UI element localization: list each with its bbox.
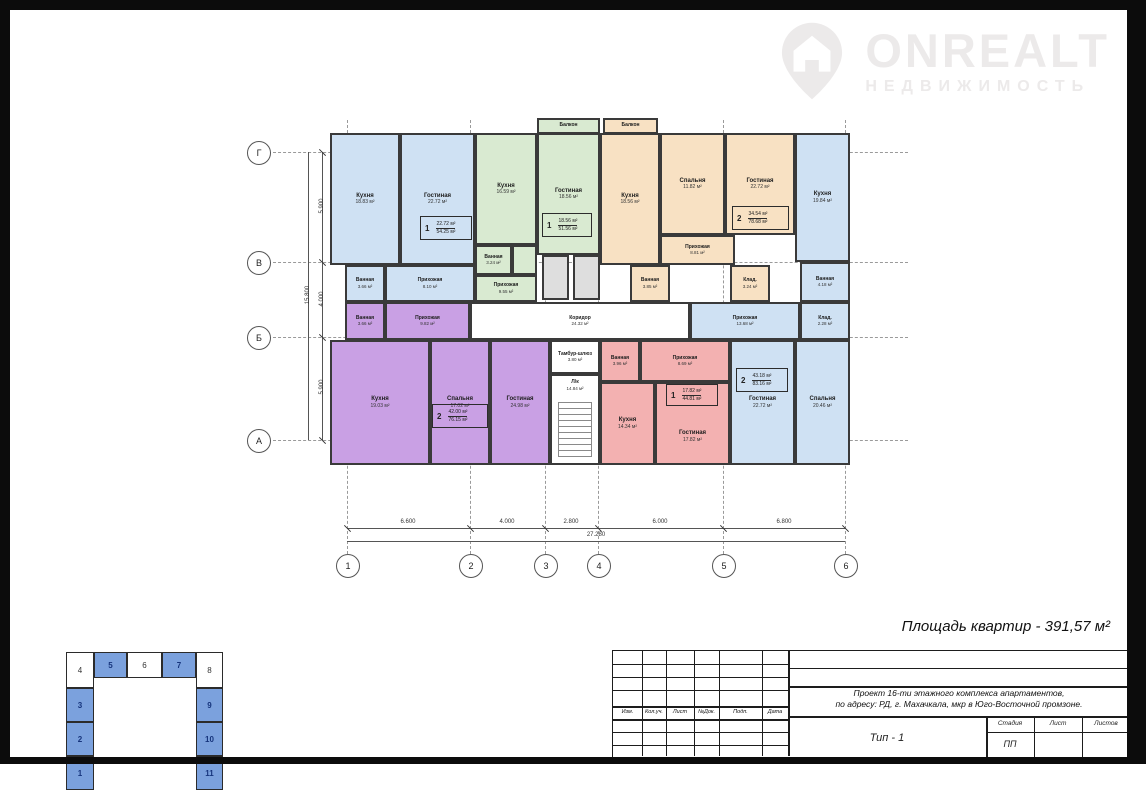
room-area: 3.80 м² (568, 357, 583, 362)
dim-value: 6.000 (640, 519, 680, 525)
frame-border-left (0, 0, 10, 764)
room-bedroom: Спальня 11.82 м² (660, 133, 725, 235)
room-label: Гостиная (555, 188, 582, 195)
total-area: 76.15 м² (448, 417, 467, 424)
apartment-badge: 1 17.82 м² 44.81 м² (666, 384, 718, 406)
room-area: 2.28 м² (818, 321, 833, 326)
room-bath: Ванная 3.96 м² (600, 340, 640, 382)
titleblock-line (613, 719, 788, 721)
room-label: Кухня (619, 417, 637, 424)
titleblock-line (642, 651, 643, 756)
total-area: 78.68 м² (748, 219, 767, 226)
site-block: 4 (66, 652, 94, 688)
apartment-number: 2 (733, 207, 745, 229)
room-hall: Прихожая 9.55 м² (475, 275, 537, 302)
sheets-header: Листов (1082, 720, 1130, 727)
living-area: 22.72 м² (436, 221, 455, 229)
room-label: Кухня (371, 396, 389, 403)
apartment-badge: 2 42.00 м² 76.15 м² (432, 404, 488, 428)
room-area: 17.82 м² (683, 437, 702, 443)
total-area: 51.56 м² (558, 226, 577, 233)
room-area: 3.24 м² (743, 284, 758, 289)
frame-border-right (1127, 0, 1146, 764)
room-living: Гостиная 24.98 м² (490, 340, 550, 465)
room-area: 19.84 м² (813, 198, 832, 204)
room-bedroom: Спальня 20.46 м² (795, 340, 850, 465)
frame-border-bottom (0, 757, 1146, 764)
apartment-number: 1 (421, 217, 433, 239)
room-balcony: Балкон (603, 118, 658, 134)
room-bath: Ванная 3.85 м² (630, 265, 670, 302)
elevator-shaft (542, 255, 569, 300)
room-area: 8.81 м² (690, 250, 705, 255)
titleblock-line (613, 706, 788, 708)
titleblock-line (719, 651, 720, 756)
revision-header: Кол.уч. (642, 709, 666, 715)
living-area: 34.54 м² (748, 211, 767, 219)
titleblock-line (613, 690, 788, 691)
room-kitchen: Кухня 18.56 м² (600, 133, 660, 265)
stairs (558, 402, 592, 457)
total-area: 44.81 м² (682, 396, 701, 403)
room-label: Балкон (559, 123, 577, 129)
total-area: 54.25 м² (436, 229, 455, 236)
room-living: Гостиная 22.72 м² (400, 133, 475, 265)
room-area: 24.98 м² (510, 403, 529, 409)
room-area: 22.72 м² (753, 403, 772, 409)
pin-house-icon (771, 20, 853, 102)
onrealt-watermark: ONREALT НЕДВИЖИМОСТЬ (771, 20, 1110, 102)
corridor: Коридор 24.32 м² (470, 302, 690, 340)
room-hall: Прихожая 9.82 м² (385, 302, 470, 340)
room-area: 11.82 м² (683, 184, 702, 190)
room-area: 24.32 м² (571, 321, 588, 326)
revision-header: Подп. (719, 709, 762, 715)
room-area: 3.24 м² (486, 260, 501, 265)
site-block-highlighted: 10 (196, 722, 223, 756)
site-block-highlighted: 5 (94, 652, 127, 678)
revision-header: Дата (762, 709, 788, 715)
room-area: 16.59 м² (496, 189, 515, 195)
room-label: Спальня (810, 396, 836, 403)
vestibule: Тамбур-шлюз 3.80 м² (550, 340, 600, 374)
dim-total: 15.800 (305, 275, 311, 315)
elevator-shaft (573, 255, 600, 300)
room-bath: Ванная 4.18 м² (800, 262, 850, 302)
room-area: 3.96 м² (613, 361, 628, 366)
room-hall: Прихожая 8.69 м² (640, 340, 730, 382)
titleblock-line (762, 651, 763, 756)
room-storage: Клад. 3.24 м² (730, 265, 770, 302)
room-area: 3.85 м² (643, 284, 658, 289)
room-label: Балкон (621, 123, 639, 129)
total-apartments-area: Площадь квартир - 391,57 м² (902, 618, 1110, 635)
room-kitchen: Кухня 18.83 м² (330, 133, 400, 265)
living-area: 42.00 м² (448, 409, 467, 417)
axis-col-5: 5 (712, 554, 736, 578)
titleblock-line (613, 745, 788, 746)
revision-header: Лист (666, 709, 694, 715)
dim-value: 2.800 (551, 519, 591, 525)
room-area: 19.03 м² (370, 403, 389, 409)
dim-value: 5.900 (319, 367, 325, 407)
dim-total: 27.280 (576, 532, 616, 538)
titleblock-line (613, 677, 788, 678)
axis-col-3: 3 (534, 554, 558, 578)
site-block-highlighted: 7 (162, 652, 196, 678)
frame-border-top (0, 0, 1146, 10)
room-area: 8.69 м² (678, 361, 693, 366)
sheet-header: Лист (1034, 720, 1082, 727)
room-hall: Прихожая 13.68 м² (690, 302, 800, 340)
apartment-number: 1 (543, 214, 555, 236)
site-block: 8 (196, 652, 223, 688)
room-area: 13.68 м² (736, 321, 753, 326)
stage-value: ПП (986, 739, 1034, 749)
project-line-2: по адресу: РД, г. Махачкала, мкр в Юго-В… (793, 699, 1125, 710)
living-area: 18.56 м² (558, 218, 577, 226)
floorplan-sheet: { "logo": {"word": "ONREALT", "subtitle"… (0, 0, 1146, 764)
stage-header: Стадия (986, 720, 1034, 727)
apartment-number: 2 (737, 369, 749, 391)
floor-plan: Кухня 18.83 м² Гостиная 22.72 м² Ванная … (330, 118, 850, 465)
revision-header: №Док. (694, 709, 719, 715)
site-block: 6 (127, 652, 162, 678)
room-label: Спальня (447, 396, 473, 403)
titleblock-line (666, 651, 667, 756)
apartment-badge: 2 34.54 м² 78.68 м² (732, 206, 789, 230)
logo-word: ONREALT (865, 27, 1110, 74)
room-label: Гостиная (746, 178, 773, 185)
total-area: 83.16 м² (752, 381, 771, 388)
axis-col-1: 1 (336, 554, 360, 578)
axis-col-2: 2 (459, 554, 483, 578)
living-area: 43.18 м² (752, 373, 771, 381)
dim-value: 6.600 (388, 519, 428, 525)
room-area: 8.10 м² (423, 284, 438, 289)
axis-col-6: 6 (834, 554, 858, 578)
apartment-number: 1 (667, 385, 679, 405)
project-line-1: Проект 16-ти этажного комплекса апартаме… (793, 688, 1125, 699)
apartment-number: 2 (433, 405, 445, 427)
room-bath: Ванная 3.66 м² (345, 265, 385, 302)
room-bath: Ванная 3.66 м² (345, 302, 385, 340)
titleblock-line (986, 732, 1129, 733)
room-area: 14.84 м² (566, 386, 583, 391)
dim-value: 4.000 (487, 519, 527, 525)
room-kitchen: Кухня 19.84 м² (795, 133, 850, 262)
room-label: Кухня (497, 183, 515, 190)
room-label: Гостиная (679, 430, 706, 437)
room-area: 3.66 м² (358, 284, 373, 289)
room-kitchen: Кухня 14.34 м² (600, 382, 655, 465)
room-area: 18.83 м² (355, 199, 374, 205)
room-label: Гостиная (424, 193, 451, 200)
room-area: 4.18 м² (818, 282, 833, 287)
room-area: 18.56 м² (620, 199, 639, 205)
room-hall: Прихожая 8.10 м² (385, 265, 475, 302)
room-kitchen: Кухня 19.03 м² (330, 340, 430, 465)
room-label: Кухня (621, 193, 639, 200)
stairwell: Л/к 14.84 м² (550, 374, 600, 465)
axis-row-b: Б (247, 326, 271, 350)
titleblock-line (788, 668, 1129, 669)
revision-header: Изм. (613, 709, 642, 715)
room-label: Спальня (680, 178, 706, 185)
room-bath: Ванная 3.24 м² (475, 245, 512, 275)
room-label: Гостиная (749, 396, 776, 403)
room-label: Кухня (814, 191, 832, 198)
room-storage: Клад. 2.28 м² (800, 302, 850, 340)
apartment-badge: 2 43.18 м² 83.16 м² (736, 368, 788, 392)
living-area: 17.82 м² (682, 388, 701, 396)
room-area: 20.46 м² (813, 403, 832, 409)
axis-col-4: 4 (587, 554, 611, 578)
logo-subtitle: НЕДВИЖИМОСТЬ (865, 78, 1110, 96)
room-area: 3.66 м² (358, 321, 373, 326)
axis-row-g: Г (247, 141, 271, 165)
room-wc (512, 245, 537, 275)
room-area: 18.56 м² (559, 194, 578, 200)
room-hall: Прихожая 8.81 м² (660, 235, 735, 265)
titleblock-line (694, 651, 695, 756)
apartment-badge: 1 18.56 м² 51.56 м² (542, 213, 592, 237)
room-label: Гостиная (506, 396, 533, 403)
room-bedroom: Спальня 17.02 м² (430, 340, 490, 465)
dim-value: 5.900 (319, 186, 325, 226)
site-block-highlighted: 9 (196, 688, 223, 722)
axis-row-a: А (247, 429, 271, 453)
room-area: 14.34 м² (618, 424, 637, 430)
dim-line (347, 541, 845, 542)
project-description: Проект 16-ти этажного комплекса апартаме… (793, 688, 1125, 709)
apartment-badge: 1 22.72 м² 54.25 м² (420, 216, 472, 240)
room-area: 9.55 м² (499, 289, 514, 294)
dim-value: 6.800 (764, 519, 804, 525)
room-kitchen: Кухня 16.59 м² (475, 133, 537, 245)
room-label: Кухня (356, 193, 374, 200)
axis-row-v: В (247, 251, 271, 275)
room-area: 9.82 м² (420, 321, 435, 326)
dim-line (347, 528, 845, 529)
title-block: Изм. Кол.уч. Лист №Док. Подп. Дата Проек… (612, 650, 1128, 758)
dim-value: 4.000 (319, 279, 325, 319)
site-block-highlighted: 3 (66, 688, 94, 722)
sheet-type: Тип - 1 (788, 716, 986, 759)
titleblock-line (613, 732, 788, 733)
room-living: Гостиная 22.72 м² (730, 340, 795, 465)
logo-text: ONREALT НЕДВИЖИМОСТЬ (865, 27, 1110, 96)
titleblock-line (613, 664, 788, 665)
room-balcony: Балкон (537, 118, 600, 134)
site-block-highlighted: 2 (66, 722, 94, 756)
room-area: 22.72 м² (750, 184, 769, 190)
room-area: 22.72 м² (428, 199, 447, 205)
